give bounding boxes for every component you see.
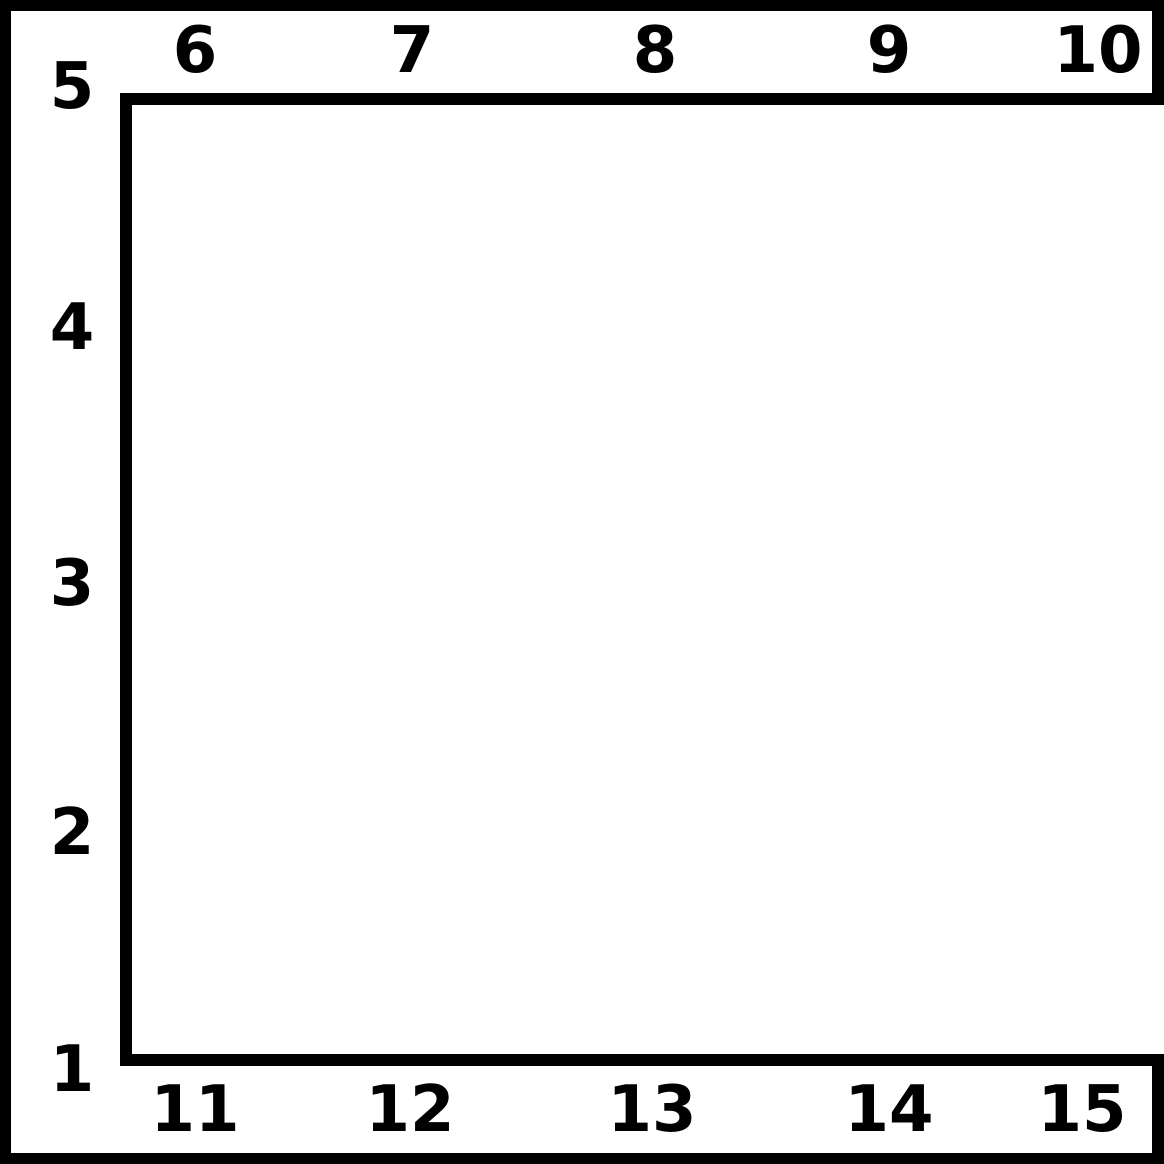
top-label-10: 10: [1053, 19, 1142, 83]
top-label-6: 6: [173, 19, 218, 83]
top-label-9: 9: [867, 19, 912, 83]
inner-border-top: [120, 93, 1164, 105]
bottom-label-14: 14: [844, 1078, 933, 1142]
bottom-label-15: 15: [1037, 1078, 1126, 1142]
top-strip-right-border: [1152, 0, 1164, 105]
top-label-7: 7: [390, 19, 435, 83]
outer-border-left: [0, 0, 11, 1164]
bottom-label-13: 13: [607, 1078, 696, 1142]
left-label-2: 2: [50, 801, 95, 865]
left-label-5: 5: [50, 55, 95, 119]
bottom-strip-right-border: [1152, 1054, 1164, 1164]
outer-border-top: [0, 0, 1164, 11]
top-label-8: 8: [633, 19, 678, 83]
bottom-label-11: 11: [150, 1078, 239, 1142]
numbered-border-diagram: 5 4 3 2 1 6 7 8 9 10 11 12 13 14 15: [0, 0, 1164, 1164]
inner-border-bottom: [120, 1054, 1164, 1066]
inner-border-left: [120, 93, 132, 1066]
left-label-1: 1: [50, 1038, 95, 1102]
left-label-4: 4: [50, 296, 95, 360]
bottom-label-12: 12: [365, 1078, 454, 1142]
left-label-3: 3: [50, 552, 95, 616]
outer-border-bottom: [0, 1153, 1164, 1164]
